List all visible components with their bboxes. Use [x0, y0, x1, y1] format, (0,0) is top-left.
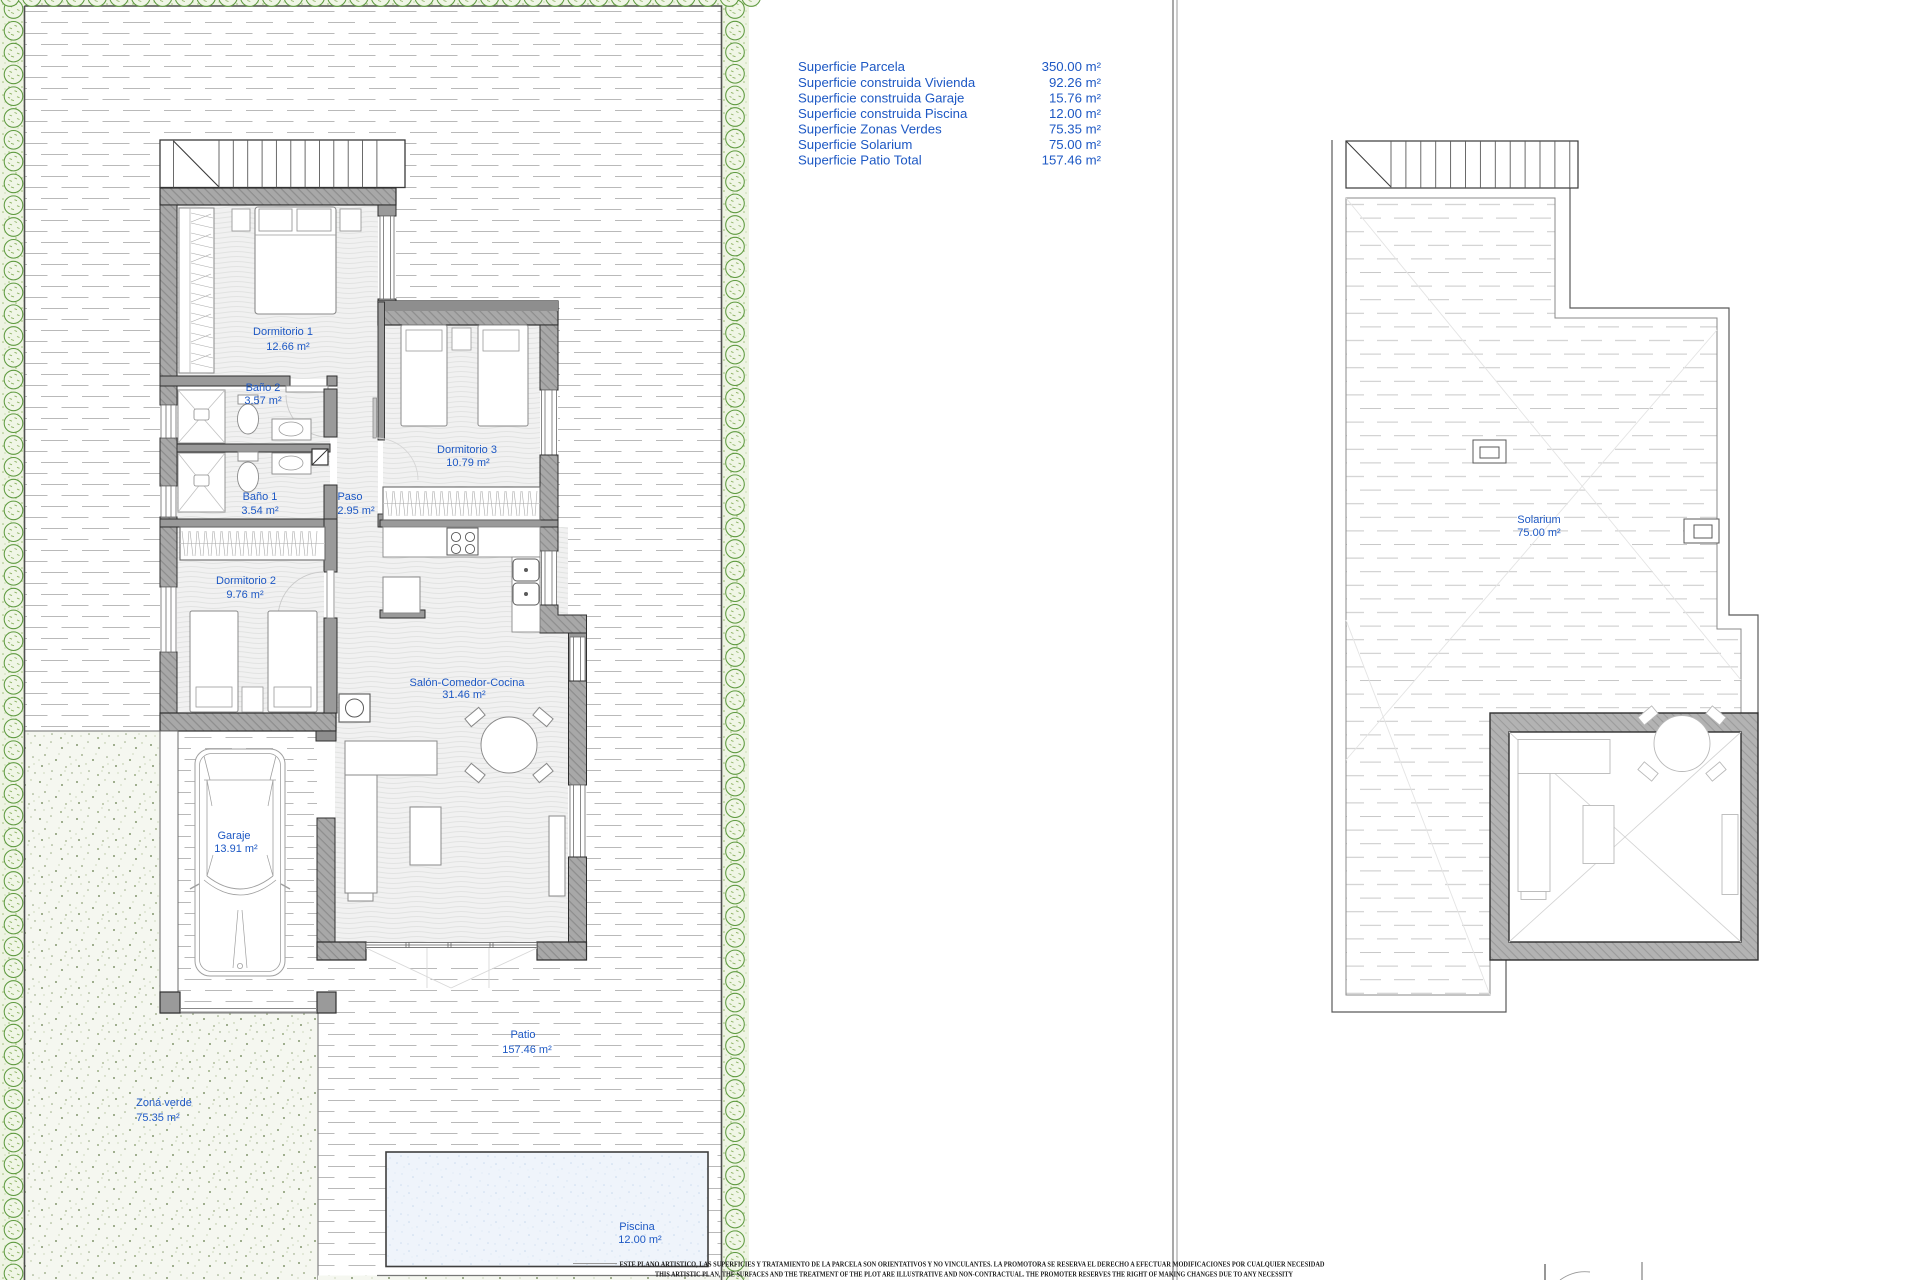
svg-text:Solarium: Solarium	[1517, 514, 1560, 526]
svg-text:Superficie Patio Total: Superficie Patio Total	[798, 153, 922, 168]
svg-text:75.35 m²: 75.35 m²	[1049, 121, 1102, 136]
svg-text:15.76 m²: 15.76 m²	[1049, 90, 1102, 105]
svg-text:10.79 m²: 10.79 m²	[446, 457, 490, 469]
svg-text:75.00 m²: 75.00 m²	[1517, 527, 1561, 539]
svg-text:75.35 m²: 75.35 m²	[136, 1112, 180, 1124]
svg-text:Dormitorio 3: Dormitorio 3	[437, 444, 497, 456]
svg-text:31.46 m²: 31.46 m²	[442, 689, 486, 701]
svg-text:Dormitorio 2: Dormitorio 2	[216, 575, 276, 587]
svg-text:Dormitorio 1: Dormitorio 1	[253, 326, 313, 338]
svg-text:13.91 m²: 13.91 m²	[214, 843, 258, 855]
svg-text:Superficie Solarium: Superficie Solarium	[798, 137, 912, 152]
svg-text:Baño 1: Baño 1	[243, 491, 278, 503]
svg-text:92.26 m²: 92.26 m²	[1049, 75, 1102, 90]
svg-text:Superficie construida Vivienda: Superficie construida Vivienda	[798, 75, 976, 90]
svg-text:Salón-Comedor-Cocina: Salón-Comedor-Cocina	[410, 677, 526, 689]
svg-text:2.95 m²: 2.95 m²	[337, 505, 375, 517]
svg-text:Piscina: Piscina	[619, 1221, 655, 1233]
svg-text:Superficie Parcela: Superficie Parcela	[798, 59, 906, 74]
svg-text:Baño 2: Baño 2	[246, 382, 281, 394]
svg-text:75.00 m²: 75.00 m²	[1049, 137, 1102, 152]
svg-text:Zoná verde: Zoná verde	[136, 1097, 192, 1109]
svg-text:12.00 m²: 12.00 m²	[618, 1234, 662, 1246]
svg-text:Garaje: Garaje	[217, 830, 250, 842]
svg-text:157.46 m²: 157.46 m²	[1042, 153, 1102, 168]
svg-text:THIS ARTISTIC PLAN, THE SURFAC: THIS ARTISTIC PLAN, THE SURFACES AND THE…	[655, 1270, 1293, 1279]
svg-text:157.46 m²: 157.46 m²	[502, 1044, 552, 1056]
svg-text:Superficie construida Piscina: Superficie construida Piscina	[798, 106, 968, 121]
svg-text:Superficie construida Garaje: Superficie construida Garaje	[798, 90, 964, 105]
svg-text:ESTE PLANO ARTISTICO, LAS SUPE: ESTE PLANO ARTISTICO, LAS SUPERFICIES Y …	[620, 1260, 1325, 1269]
svg-text:9.76 m²: 9.76 m²	[226, 589, 264, 601]
svg-text:Paso: Paso	[337, 491, 362, 503]
svg-text:3.54 m²: 3.54 m²	[241, 505, 279, 517]
svg-text:Patio: Patio	[510, 1029, 535, 1041]
svg-text:Superficie Zonas Verdes: Superficie Zonas Verdes	[798, 121, 942, 136]
svg-text:350.00 m²: 350.00 m²	[1042, 59, 1102, 74]
svg-text:12.66 m²: 12.66 m²	[266, 341, 310, 353]
svg-text:3.57 m²: 3.57 m²	[244, 395, 282, 407]
svg-text:12.00 m²: 12.00 m²	[1049, 106, 1102, 121]
